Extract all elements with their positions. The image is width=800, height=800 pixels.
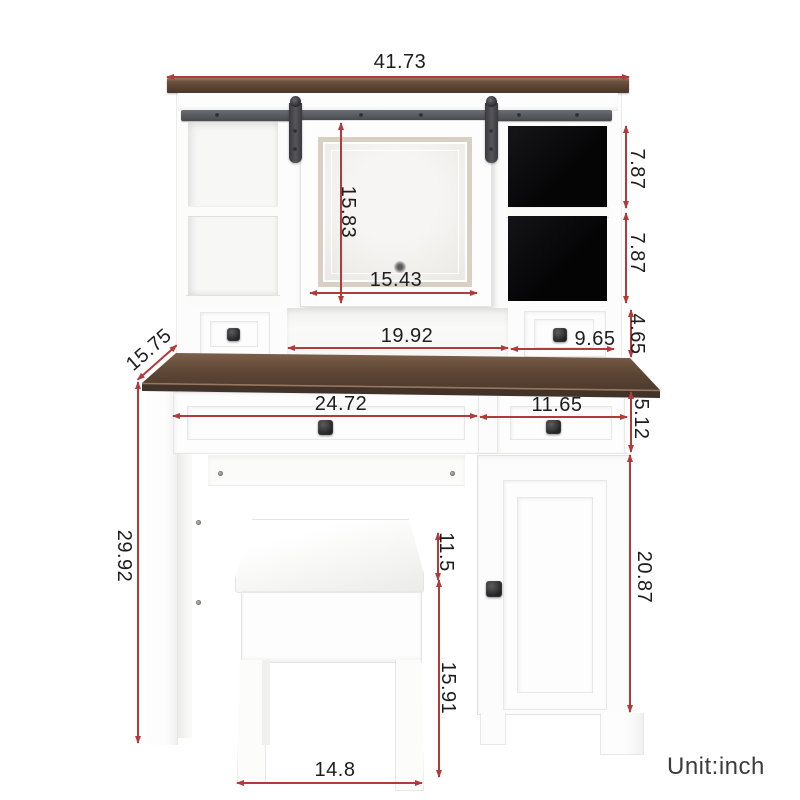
dim-line-mirror-width: [310, 292, 477, 294]
dim-label-stool-width: 14.8: [315, 760, 356, 780]
dim-label-side-drawer-width: 11.65: [531, 395, 582, 415]
dim-label-hutch-width: 41.73: [374, 52, 427, 72]
dim-label-cabinet-height: 20.87: [634, 551, 654, 604]
unit-label: Unit:inch: [667, 753, 765, 781]
dim-label-mirror-width: 15.43: [370, 270, 423, 290]
dim-label-desk-height: 29.92: [114, 530, 134, 583]
desktop-surface: [0, 0, 800, 800]
dim-label-cubby-top: 7.87: [627, 149, 647, 190]
dim-line-side-drawer-width: [480, 416, 627, 418]
dim-line-desk-height: [137, 382, 139, 743]
dim-label-cushion-height: 11.5: [436, 532, 456, 571]
dim-label-stool-leg-height: 15.91: [438, 662, 458, 715]
dim-label-hutch-drawer-width: 9.65: [575, 329, 616, 349]
dimension-diagram: 41.73 7.87 7.87 4.65 15.83 15.43 19.92 9…: [0, 0, 800, 800]
dim-line-hutch-width: [167, 76, 629, 78]
dim-line-main-drawer-width: [173, 415, 477, 417]
dim-label-hutch-mid-width: 19.92: [381, 326, 434, 346]
dim-label-cubby-bottom: 7.87: [627, 233, 647, 274]
dim-line-hutch-mid-width: [288, 347, 508, 349]
dim-line-cabinet-height: [629, 455, 631, 712]
dim-label-drawer-height: 5.12: [631, 399, 651, 440]
dim-label-main-drawer-width: 24.72: [315, 394, 368, 414]
dim-label-mirror-height: 15.83: [338, 186, 358, 239]
dim-label-hutch-drawer-height: 4.65: [627, 314, 647, 355]
dim-line-stool-width: [237, 782, 422, 784]
